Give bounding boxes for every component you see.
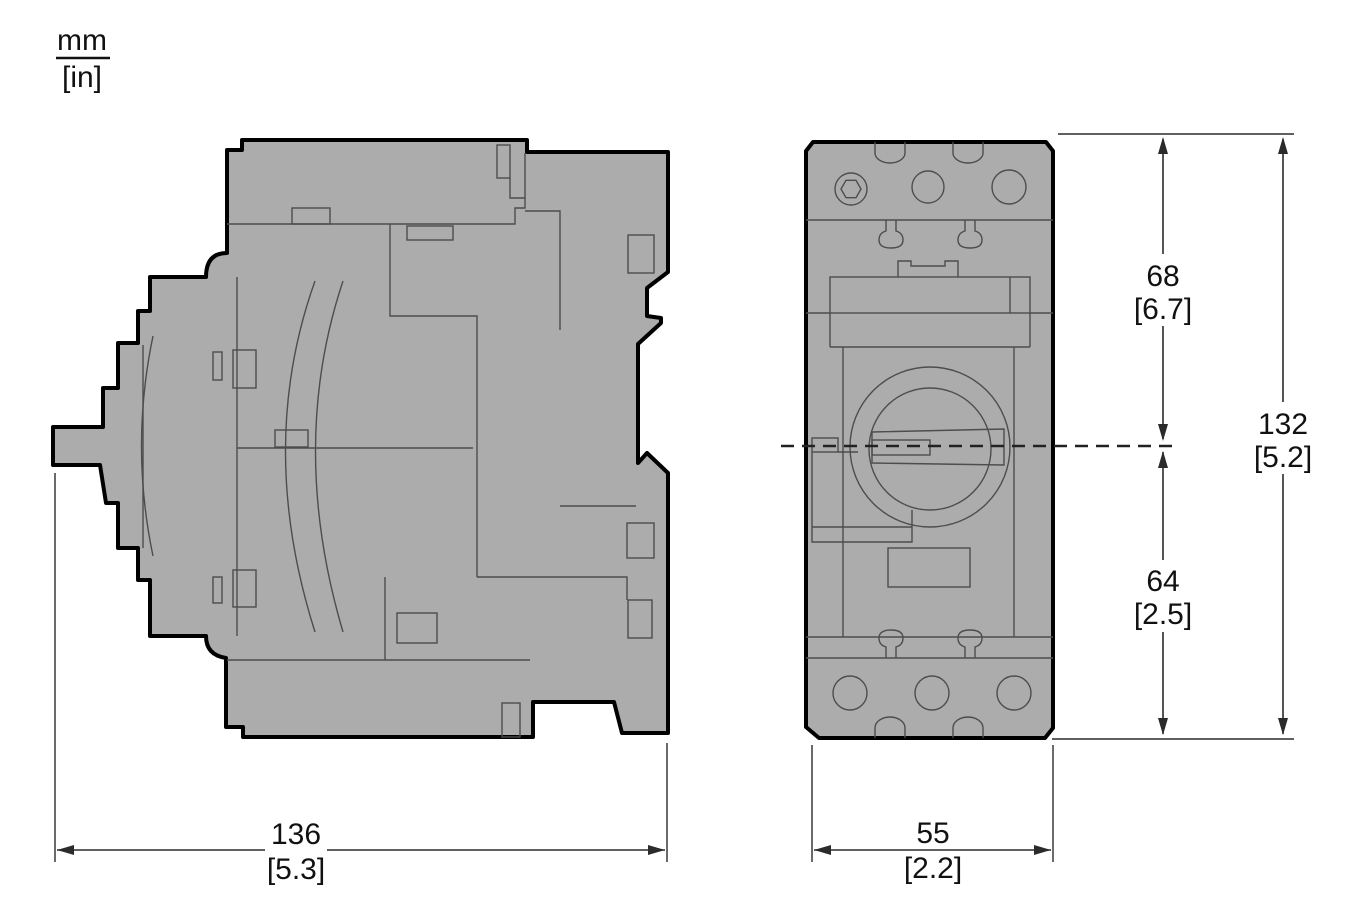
arrowhead-up <box>1158 137 1168 154</box>
front-width-mm-label: 55 <box>916 817 949 850</box>
arrowhead-left <box>814 845 831 855</box>
upper-height-in-label: [6.7] <box>1134 293 1192 326</box>
side-width-mm-label: 136 <box>271 818 321 851</box>
lower-height-in-label: [2.5] <box>1134 598 1192 631</box>
dimension-drawing: mm [in] 136 [5.3] 55 [2.2] 68 [6.7] 64 [… <box>0 0 1358 917</box>
upper-height-mm-label: 68 <box>1146 260 1179 293</box>
arrowhead-right <box>1034 845 1051 855</box>
total-height-in-label: [5.2] <box>1254 441 1312 474</box>
arrowhead-down <box>1158 424 1168 441</box>
unit-label-in: [in] <box>62 61 102 94</box>
side-width-in-label: [5.3] <box>267 853 325 886</box>
unit-label-mm: mm <box>57 24 107 57</box>
front-view <box>806 142 1053 738</box>
side-view <box>53 140 668 737</box>
lower-height-mm-label: 64 <box>1146 565 1179 598</box>
arrowhead-down <box>1278 718 1288 735</box>
front-width-in-label: [2.2] <box>904 852 962 885</box>
side-view-outline <box>53 140 668 737</box>
arrowhead-right <box>648 845 665 855</box>
arrowhead-down <box>1158 718 1168 735</box>
technical-drawing-page: mm [in] 136 [5.3] 55 [2.2] 68 [6.7] 64 [… <box>0 0 1358 917</box>
arrowhead-up <box>1278 137 1288 154</box>
arrowhead-up <box>1158 451 1168 468</box>
total-height-mm-label: 132 <box>1258 408 1308 441</box>
arrowhead-left <box>57 845 74 855</box>
